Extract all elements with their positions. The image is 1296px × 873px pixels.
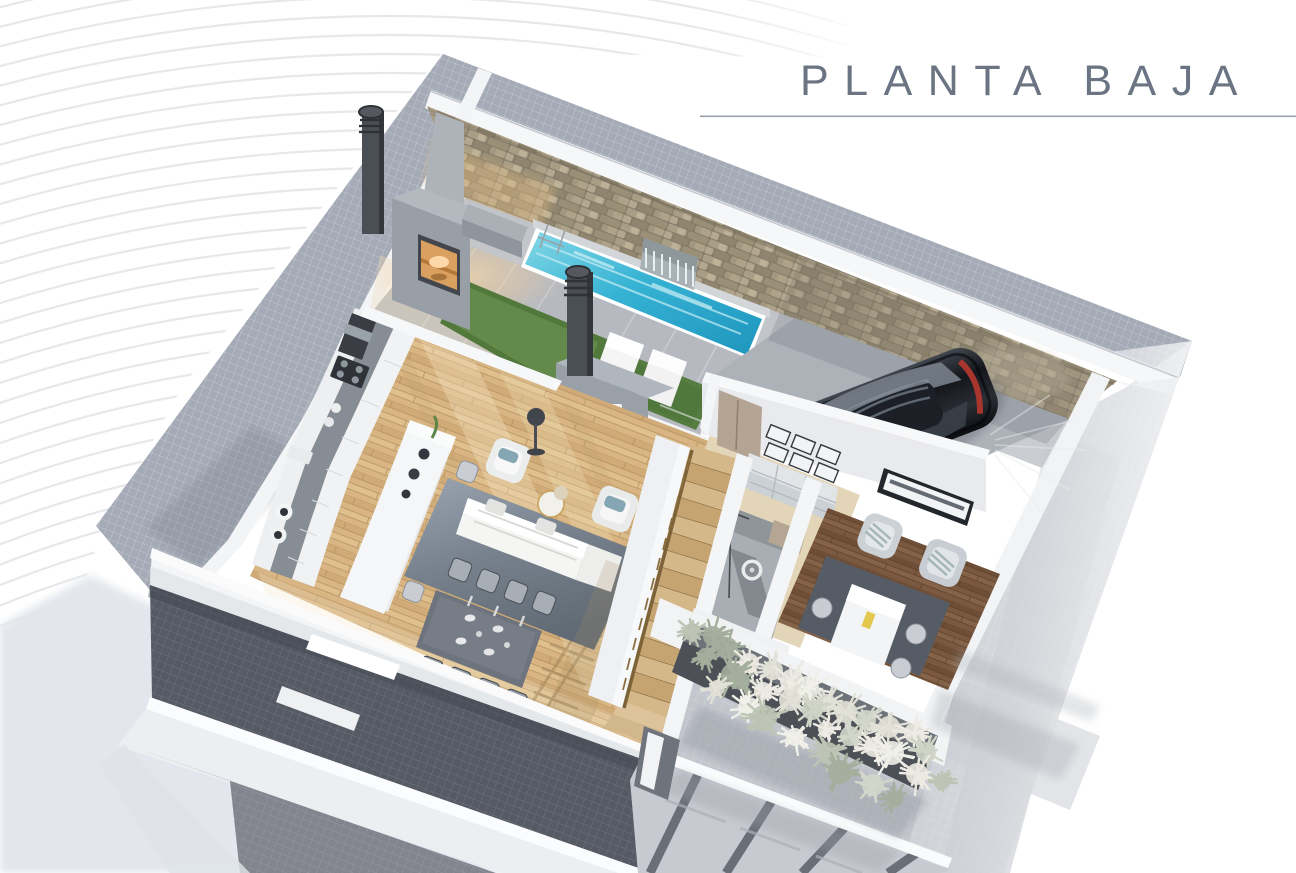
svg-text:PLANTA BAJA: PLANTA BAJA xyxy=(800,57,1253,105)
